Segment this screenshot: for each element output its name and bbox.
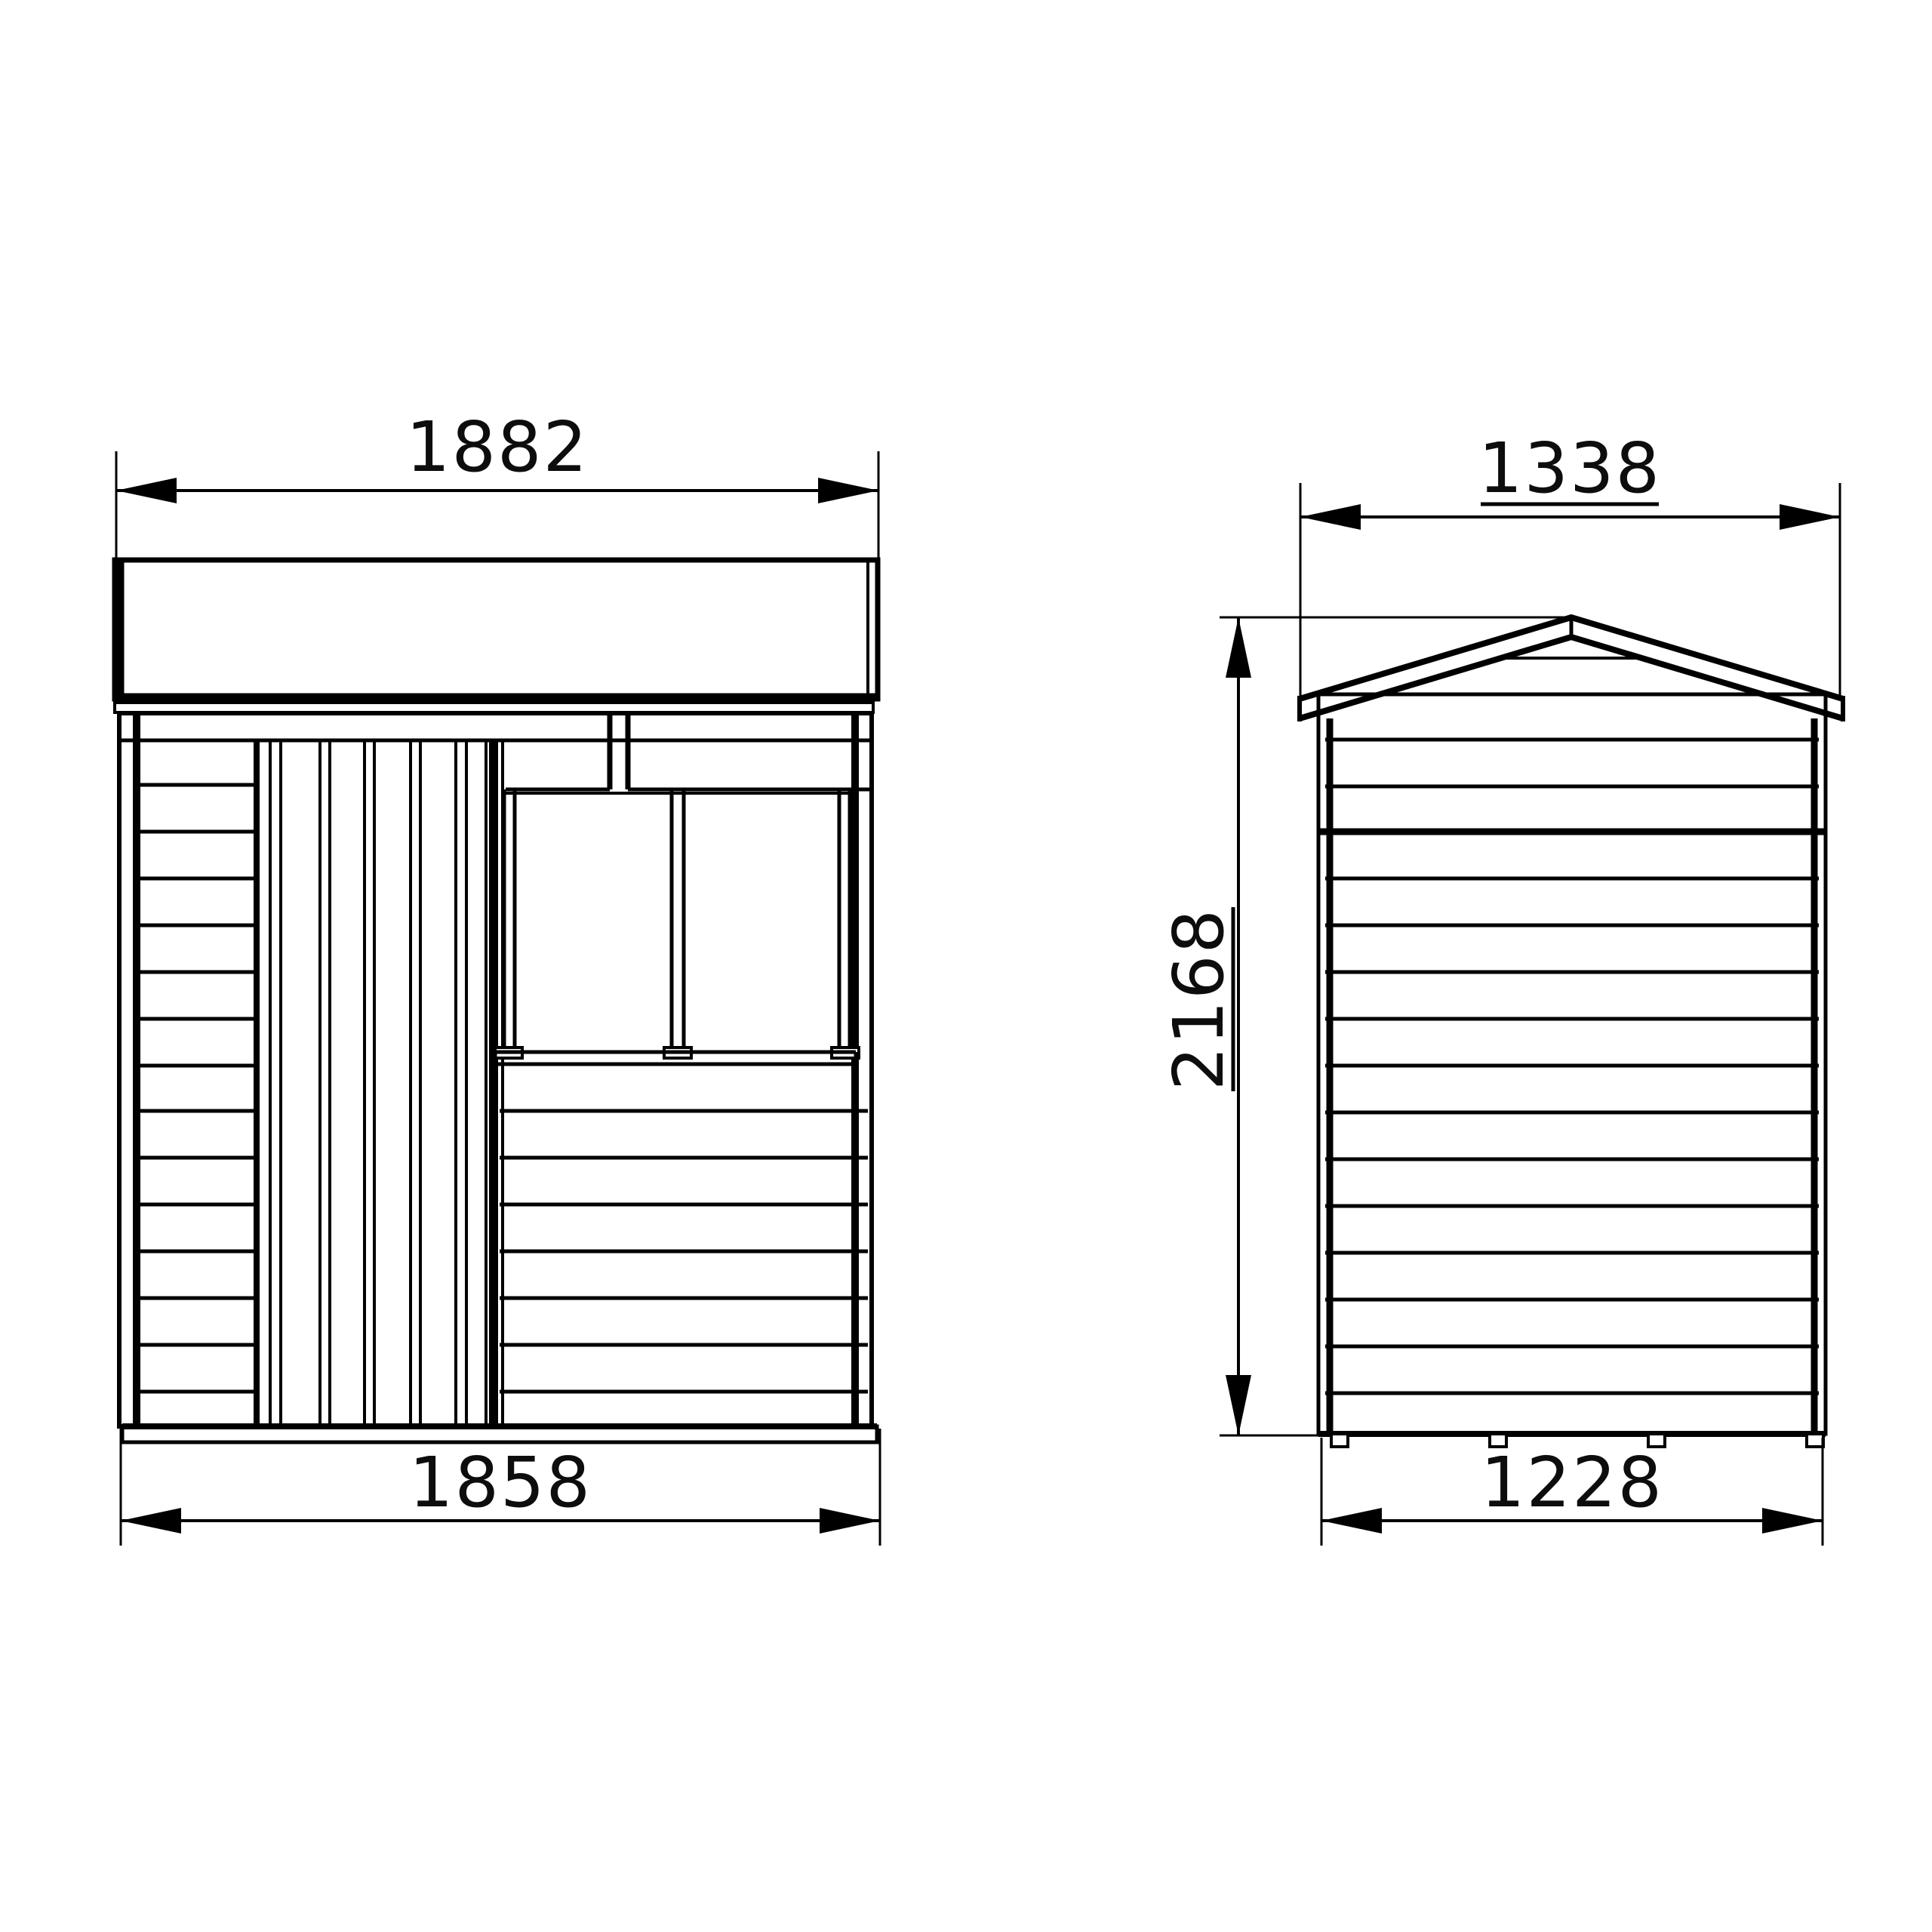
dim-label-side-bottom: 1228 xyxy=(1481,1442,1663,1523)
arrowhead-right-icon xyxy=(818,478,878,503)
arrowhead-up-icon xyxy=(1226,617,1251,678)
arrowhead-right-icon xyxy=(820,1508,880,1534)
arrowhead-left-icon xyxy=(1321,1508,1382,1534)
arrowhead-left-icon xyxy=(1300,504,1361,530)
corner-trims xyxy=(1330,718,1814,1434)
dim-label-side-top: 1338 xyxy=(1478,428,1661,509)
arrowhead-left-icon xyxy=(116,478,177,503)
arrowhead-left-icon xyxy=(121,1508,181,1534)
dim-front-top-width: 1882 xyxy=(116,407,878,558)
skid-foot-4 xyxy=(1807,1434,1823,1447)
dim-side-bottom-width: 1228 xyxy=(1321,1438,1823,1546)
skid-foot-1 xyxy=(1331,1434,1348,1447)
cladding-lines xyxy=(1325,740,1819,1393)
drawing-canvas: 1882 xyxy=(0,0,1932,1932)
arrowhead-down-icon xyxy=(1226,1375,1251,1435)
rafter-inner-line xyxy=(1300,637,1843,718)
front-elevation: 1882 xyxy=(115,407,880,1546)
dim-front-bottom-width: 1858 xyxy=(121,1429,880,1546)
side-roof xyxy=(1300,617,1843,721)
arrowhead-right-icon xyxy=(1762,1508,1823,1534)
side-elevation: 1338 2 xyxy=(1158,428,1843,1546)
arrowhead-right-icon xyxy=(1780,504,1840,530)
front-roof xyxy=(115,560,878,712)
dim-label-side-height: 2168 xyxy=(1158,908,1239,1091)
dim-label-front-bottom: 1858 xyxy=(409,1442,592,1523)
dim-label-front-top: 1882 xyxy=(406,407,589,488)
roof-band xyxy=(115,560,878,699)
side-wall xyxy=(1318,658,1826,1447)
shed-technical-drawing: 1882 xyxy=(0,0,1932,1932)
fascia-end-caps xyxy=(1300,696,1843,721)
